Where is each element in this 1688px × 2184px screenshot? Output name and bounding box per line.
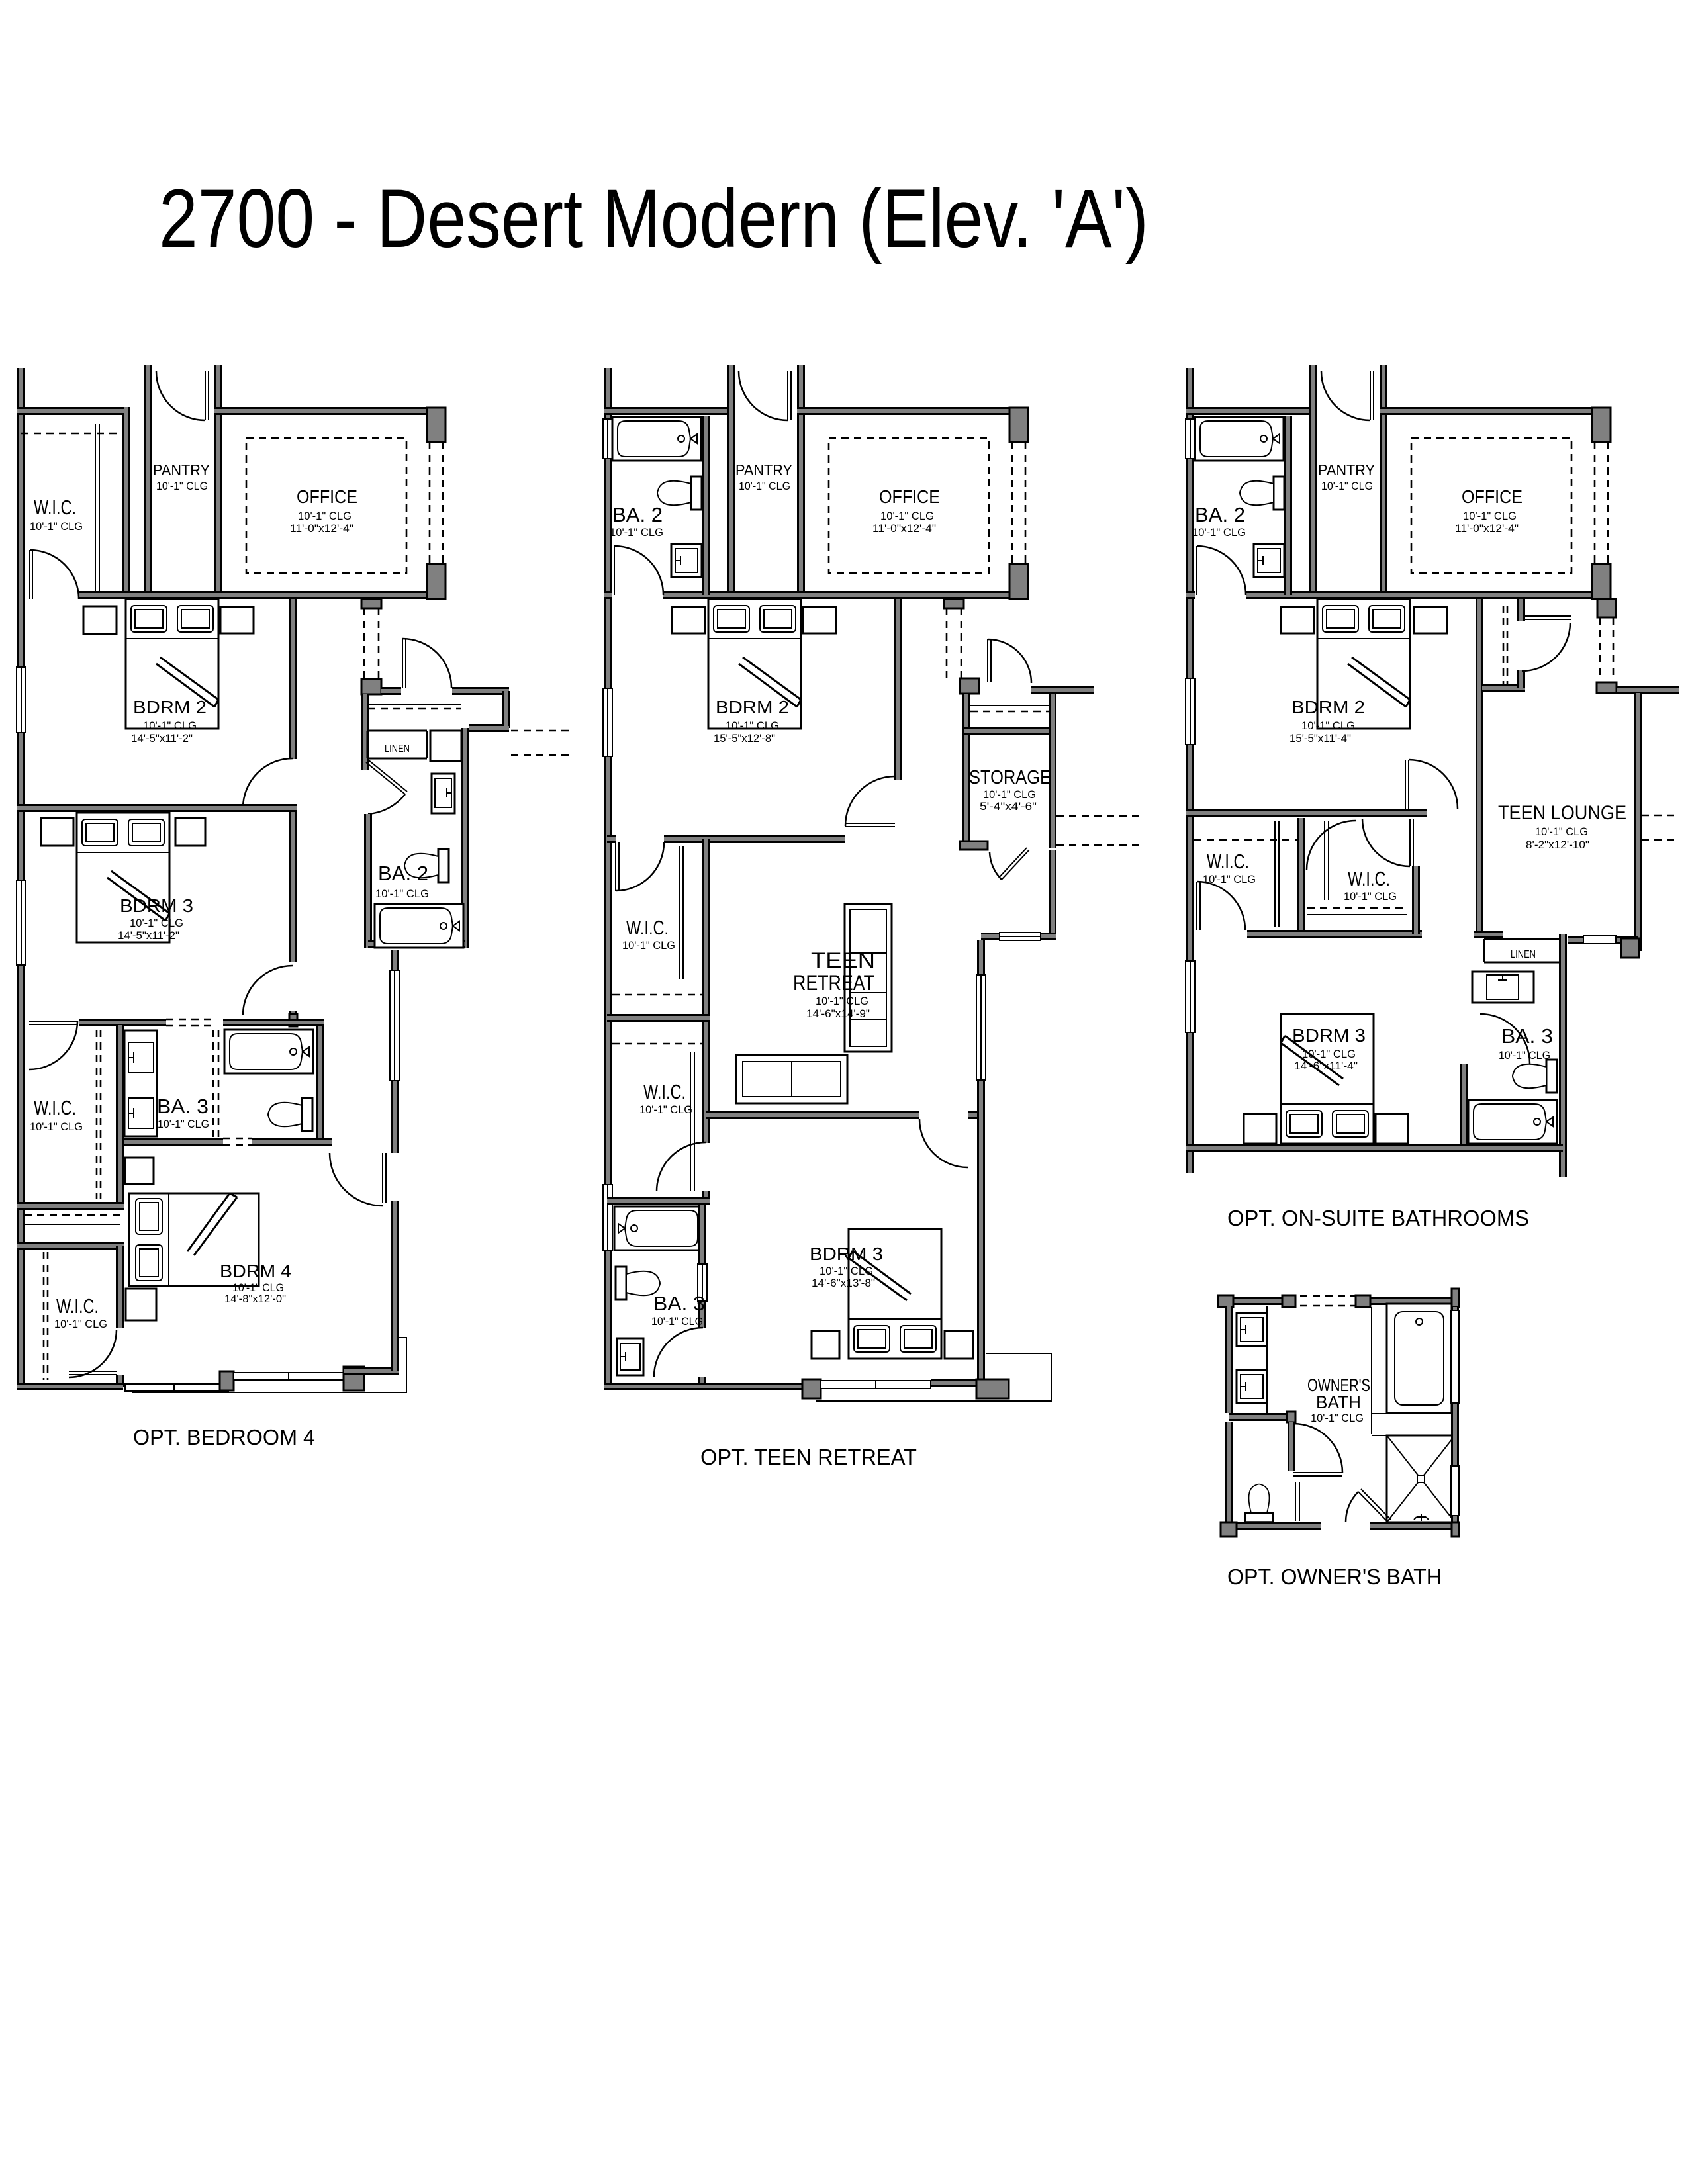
svg-text:10'-1" CLG: 10'-1" CLG bbox=[1311, 1412, 1364, 1424]
svg-text:10'-1" CLG: 10'-1" CLG bbox=[156, 480, 208, 492]
svg-text:14'-6"x13'-8": 14'-6"x13'-8" bbox=[812, 1277, 875, 1289]
svg-text:PANTRY: PANTRY bbox=[1318, 461, 1375, 478]
svg-text:15'-5"x12'-8": 15'-5"x12'-8" bbox=[714, 732, 775, 745]
svg-text:BATH: BATH bbox=[1316, 1392, 1361, 1412]
svg-text:10'-1" CLG: 10'-1" CLG bbox=[1463, 510, 1517, 522]
svg-text:W.I.C.: W.I.C. bbox=[56, 1295, 99, 1318]
svg-text:BA. 2: BA. 2 bbox=[378, 862, 428, 885]
svg-text:11'-0"x12'-4": 11'-0"x12'-4" bbox=[290, 522, 353, 535]
svg-text:14'-8"x12'-0": 14'-8"x12'-0" bbox=[224, 1293, 286, 1305]
svg-text:10'-1" CLG: 10'-1" CLG bbox=[158, 1118, 209, 1130]
svg-text:15'-5"x11'-4": 15'-5"x11'-4" bbox=[1289, 732, 1351, 745]
svg-text:10'-1" CLG: 10'-1" CLG bbox=[1302, 1048, 1356, 1060]
svg-text:5'-4"x4'-6": 5'-4"x4'-6" bbox=[980, 800, 1037, 813]
svg-text:11'-0"x12'-4": 11'-0"x12'-4" bbox=[872, 522, 936, 535]
svg-text:STORAGE: STORAGE bbox=[969, 767, 1051, 788]
svg-text:BDRM 2: BDRM 2 bbox=[716, 697, 789, 717]
svg-text:PANTRY: PANTRY bbox=[735, 461, 792, 478]
svg-text:14'-6"x11'-4": 14'-6"x11'-4" bbox=[1294, 1060, 1358, 1072]
svg-text:10'-1" CLG: 10'-1" CLG bbox=[1301, 719, 1355, 732]
svg-text:10'-1" CLG: 10'-1" CLG bbox=[639, 1103, 692, 1116]
svg-text:OPT. ON-SUITE BATHROOMS: OPT. ON-SUITE BATHROOMS bbox=[1227, 1206, 1529, 1230]
svg-text:W.I.C.: W.I.C. bbox=[1207, 850, 1249, 873]
svg-text:10'-1" CLG: 10'-1" CLG bbox=[880, 510, 934, 522]
svg-text:W.I.C.: W.I.C. bbox=[34, 1096, 76, 1119]
svg-text:BDRM 3: BDRM 3 bbox=[1292, 1025, 1366, 1046]
svg-text:W.I.C.: W.I.C. bbox=[643, 1080, 686, 1103]
svg-text:10'-1" CLG: 10'-1" CLG bbox=[30, 1120, 83, 1133]
svg-text:10'-1" CLG: 10'-1" CLG bbox=[726, 719, 779, 732]
svg-text:TEEN LOUNGE: TEEN LOUNGE bbox=[1498, 802, 1626, 824]
svg-text:10'-1" CLG: 10'-1" CLG bbox=[1499, 1049, 1550, 1062]
svg-text:10'-1" CLG: 10'-1" CLG bbox=[983, 788, 1036, 801]
svg-text:BA. 2: BA. 2 bbox=[1195, 503, 1245, 526]
svg-text:W.I.C.: W.I.C. bbox=[34, 496, 76, 519]
svg-text:OFFICE: OFFICE bbox=[879, 486, 940, 507]
svg-text:W.I.C.: W.I.C. bbox=[626, 916, 669, 939]
svg-text:BDRM 4: BDRM 4 bbox=[220, 1261, 291, 1281]
svg-text:BDRM 2: BDRM 2 bbox=[133, 697, 207, 717]
svg-text:LINEN: LINEN bbox=[385, 743, 410, 754]
svg-text:8'-2"x12'-10": 8'-2"x12'-10" bbox=[1526, 839, 1589, 851]
svg-text:10'-1" CLG: 10'-1" CLG bbox=[143, 719, 197, 732]
svg-text:10'-1" CLG: 10'-1" CLG bbox=[130, 917, 183, 929]
svg-text:OFFICE: OFFICE bbox=[297, 486, 357, 507]
svg-text:14'-5"x11'-2": 14'-5"x11'-2" bbox=[131, 732, 193, 745]
svg-text:OPT. OWNER'S BATH: OPT. OWNER'S BATH bbox=[1227, 1565, 1442, 1589]
svg-text:BA. 3: BA. 3 bbox=[653, 1292, 705, 1315]
svg-text:W.I.C.: W.I.C. bbox=[1348, 867, 1390, 890]
svg-text:LINEN: LINEN bbox=[1511, 949, 1536, 960]
svg-text:10'-1" CLG: 10'-1" CLG bbox=[30, 520, 83, 533]
svg-text:10'-1" CLG: 10'-1" CLG bbox=[1192, 526, 1246, 539]
svg-text:10'-1" CLG: 10'-1" CLG bbox=[651, 1315, 703, 1328]
svg-text:PANTRY: PANTRY bbox=[153, 461, 210, 478]
svg-text:OPT. TEEN RETREAT: OPT. TEEN RETREAT bbox=[700, 1445, 917, 1469]
svg-text:10'-1" CLG: 10'-1" CLG bbox=[820, 1265, 873, 1277]
svg-text:10'-1" CLG: 10'-1" CLG bbox=[622, 939, 675, 952]
svg-text:BA. 3: BA. 3 bbox=[157, 1095, 209, 1118]
svg-text:BDRM 2: BDRM 2 bbox=[1291, 697, 1365, 717]
svg-text:10'-1" CLG: 10'-1" CLG bbox=[1344, 890, 1397, 903]
svg-text:10'-1" CLG: 10'-1" CLG bbox=[1321, 480, 1373, 492]
svg-text:OPT. BEDROOM 4: OPT. BEDROOM 4 bbox=[133, 1425, 315, 1449]
svg-text:11'-0"x12'-4": 11'-0"x12'-4" bbox=[1455, 522, 1519, 535]
svg-text:2700 - Desert Modern (Elev. 'A: 2700 - Desert Modern (Elev. 'A') bbox=[159, 173, 1149, 265]
svg-text:BDRM 3: BDRM 3 bbox=[120, 895, 193, 916]
svg-text:10'-1" CLG: 10'-1" CLG bbox=[816, 995, 868, 1007]
svg-text:14'-5"x11'-2": 14'-5"x11'-2" bbox=[118, 929, 179, 942]
svg-text:10'-1" CLG: 10'-1" CLG bbox=[298, 510, 352, 522]
svg-text:10'-1" CLG: 10'-1" CLG bbox=[610, 526, 663, 539]
svg-text:RETREAT: RETREAT bbox=[793, 971, 874, 995]
svg-text:10'-1" CLG: 10'-1" CLG bbox=[54, 1318, 107, 1330]
svg-text:BDRM 3: BDRM 3 bbox=[810, 1244, 883, 1264]
svg-text:10'-1" CLG: 10'-1" CLG bbox=[375, 887, 429, 900]
svg-text:OFFICE: OFFICE bbox=[1462, 486, 1523, 507]
svg-text:14'-6"x14'-9": 14'-6"x14'-9" bbox=[806, 1007, 870, 1020]
svg-text:BA. 2: BA. 2 bbox=[612, 503, 663, 526]
svg-text:10'-1" CLG: 10'-1" CLG bbox=[1535, 825, 1588, 838]
svg-text:10'-1" CLG: 10'-1" CLG bbox=[739, 480, 790, 492]
svg-text:BA. 3: BA. 3 bbox=[1501, 1024, 1553, 1048]
svg-text:TEEN: TEEN bbox=[811, 948, 875, 972]
